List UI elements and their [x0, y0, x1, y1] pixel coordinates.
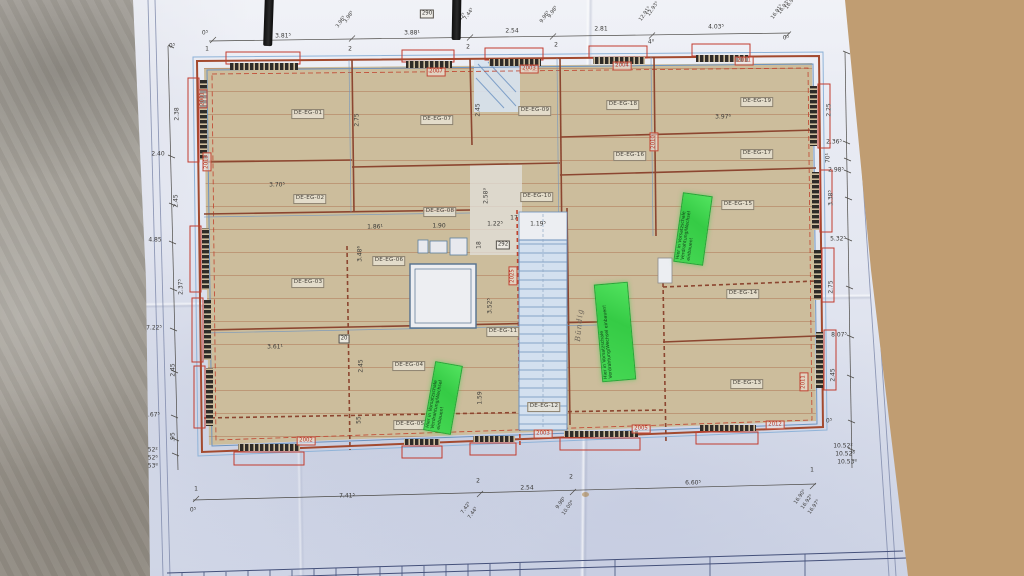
window-tag: 2012: [766, 420, 785, 429]
dimension-text: 2: [348, 46, 352, 53]
sticky-note: Hier in Vorsatzschale Verdrahtung/Wechse…: [594, 282, 636, 383]
window-tag: 2011: [799, 373, 808, 392]
dimension-text: 3.97⁶: [715, 114, 731, 121]
dimension-text: 0⁵: [783, 35, 789, 42]
dimension-text: 2: [476, 478, 480, 485]
dimension-text: 2.98⁵: [828, 167, 844, 174]
dimension-text: 2: [569, 474, 573, 481]
dimension-text: 10.52²: [833, 443, 853, 450]
dimension-text: 9.98⁵: [547, 5, 559, 19]
dimension-text: 8.07⁵: [831, 332, 847, 339]
dimension-text: 3.81⁵: [275, 33, 291, 40]
room-label: DE-EG-16: [613, 151, 646, 161]
dimension-text: 17: [510, 215, 518, 222]
dimension-text: 2: [554, 42, 558, 49]
dimension-text: 10.53⁸: [837, 459, 857, 466]
room-label: DE-EG-17: [740, 149, 773, 159]
room-label: DE-EG-11: [486, 327, 519, 337]
room-label: DE-EG-05: [393, 420, 426, 430]
dimension-text: 12.93⁵: [646, 1, 660, 18]
dimension-text: 3.98⁵: [343, 10, 355, 24]
dimension-text: 4.85: [148, 237, 161, 244]
dimension-text: 2.40: [151, 151, 164, 158]
room-label: DE-EG-14: [726, 289, 759, 299]
dimension-text: 2.25: [826, 103, 833, 116]
photo-of-floor-plan: DE-EG-01DE-EG-02DE-EG-03DE-EG-04DE-EG-05…: [0, 0, 1024, 576]
dimension-text: 1: [205, 46, 209, 53]
room-label: DE-EG-12: [527, 402, 560, 412]
room-label: DE-EG-06: [372, 256, 405, 266]
window-tag: 2025: [508, 267, 517, 286]
dimension-text: 3.61¹: [267, 344, 283, 351]
sticky-note: Hier in Vorsatzschale Verdrahtung/Wechse…: [423, 361, 463, 435]
boxed-dimension: 290: [420, 9, 434, 18]
window-tag: 2010: [649, 133, 658, 152]
dimension-text: 3.48⁶: [357, 246, 364, 262]
dimension-text: 2.81: [594, 26, 607, 33]
dimension-text: 1: [194, 486, 198, 493]
window-tag: 2004: [613, 61, 632, 70]
window-tag: 2001: [198, 90, 207, 109]
dark-mark: [263, 0, 274, 46]
room-label: DE-EG-09: [518, 106, 551, 116]
dimension-text: 55: [356, 416, 363, 424]
room-label: DE-EG-03: [291, 278, 324, 288]
dimension-text: 1.90: [432, 223, 445, 230]
room-label: DE-EG-08: [423, 207, 456, 217]
dimension-text: 70¹: [825, 153, 832, 163]
dimension-text: 1.22⁵: [487, 221, 503, 228]
dimension-text: 7.44⁵: [463, 7, 475, 21]
dark-mark: [452, 0, 462, 40]
boxed-dimension: 292: [496, 240, 510, 249]
dimension-text: 16.96⁵: [784, 0, 798, 10]
dimension-text: 5.32⁵: [830, 236, 846, 243]
dimension-text: 0⁵: [190, 507, 196, 514]
room-label: DE-EG-13: [730, 379, 763, 389]
room-label: DE-EG-10: [520, 192, 553, 202]
room-label: DE-EG-02: [293, 194, 326, 204]
window-tag: 2013: [202, 153, 211, 172]
dimension-text: 3.70⁵: [269, 182, 285, 189]
dimension-text: 2.45: [358, 359, 365, 372]
sticky-note: Hier in Vorsatzschale Verdrahtung/Wechse…: [673, 192, 712, 265]
dimension-text: 1.86¹: [367, 224, 383, 231]
dimension-text: 1.59: [477, 391, 484, 404]
dimension-text: 1: [810, 467, 814, 474]
window-tag: 2011: [735, 56, 754, 65]
dimension-text: 2.38: [174, 107, 181, 120]
dimension-text: 2.45: [475, 103, 482, 116]
dimension-text: 2: [466, 44, 470, 51]
dimension-text: 4.03⁵: [708, 24, 724, 31]
window-tag: 2002: [297, 436, 316, 445]
room-label: DE-EG-04: [392, 361, 425, 371]
dimension-text: 1.19⁵: [530, 221, 546, 228]
dimension-text: 2.45: [830, 368, 837, 381]
dimension-text: 0⁵: [202, 30, 208, 37]
boxed-dimension: 20: [339, 334, 350, 343]
handwritten-note: Bündig: [573, 308, 585, 342]
dimension-text: 4⁰: [648, 39, 654, 46]
dimension-text: 3.52⁵: [487, 298, 494, 314]
dimension-text: 2.54: [520, 485, 533, 492]
window-tag: 2003: [534, 429, 553, 438]
room-label: DE-EG-01: [291, 109, 324, 119]
window-tag: 2005: [632, 424, 651, 433]
dimension-text: 0⁵: [826, 418, 832, 425]
dimension-text: 2.54: [505, 28, 518, 35]
dimension-text: 2.58³: [483, 188, 490, 204]
dimension-text: 18: [476, 241, 483, 249]
window-tag: 2007: [427, 67, 446, 76]
window-tag: 2003: [520, 64, 539, 73]
dimension-text: 0⁵: [169, 43, 175, 50]
room-label: DE-EG-18: [606, 100, 639, 110]
dimension-text: .95: [170, 432, 177, 442]
room-label: DE-EG-19: [740, 97, 773, 107]
dimension-text: 3.38⁵: [828, 190, 835, 206]
dimension-text: 2.45: [173, 194, 180, 207]
dimension-text: 3.88¹: [404, 30, 420, 37]
dimension-text: 7.22⁵: [146, 325, 162, 332]
dimension-text: 2.75: [828, 280, 835, 293]
dimension-text: 10.52⁶: [835, 451, 855, 458]
room-label: DE-EG-07: [420, 115, 453, 125]
dimension-text: 6.60⁵: [685, 480, 701, 487]
room-label: DE-EG-15: [721, 200, 754, 210]
dimension-text: 2.36⁵: [826, 139, 842, 146]
dimension-text: 2.37⁵: [178, 279, 185, 295]
dimension-text: 2.45: [170, 363, 177, 376]
dimension-text: 7.41⁵: [339, 493, 355, 500]
dimension-text: 2.75: [354, 113, 361, 126]
